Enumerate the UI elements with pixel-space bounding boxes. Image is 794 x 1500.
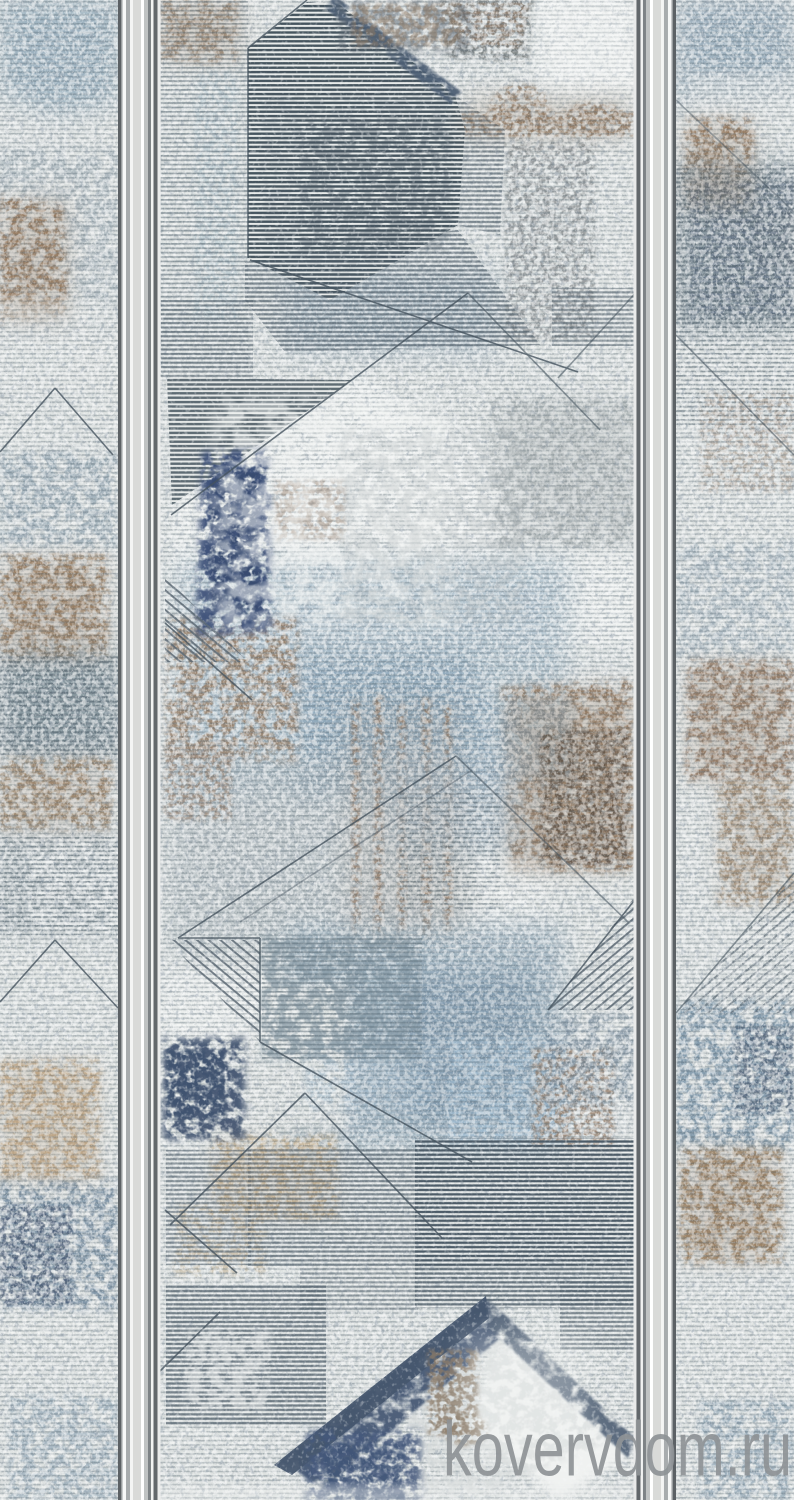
svg-text:kovervdom.ru: kovervdom.ru [443,1407,792,1493]
